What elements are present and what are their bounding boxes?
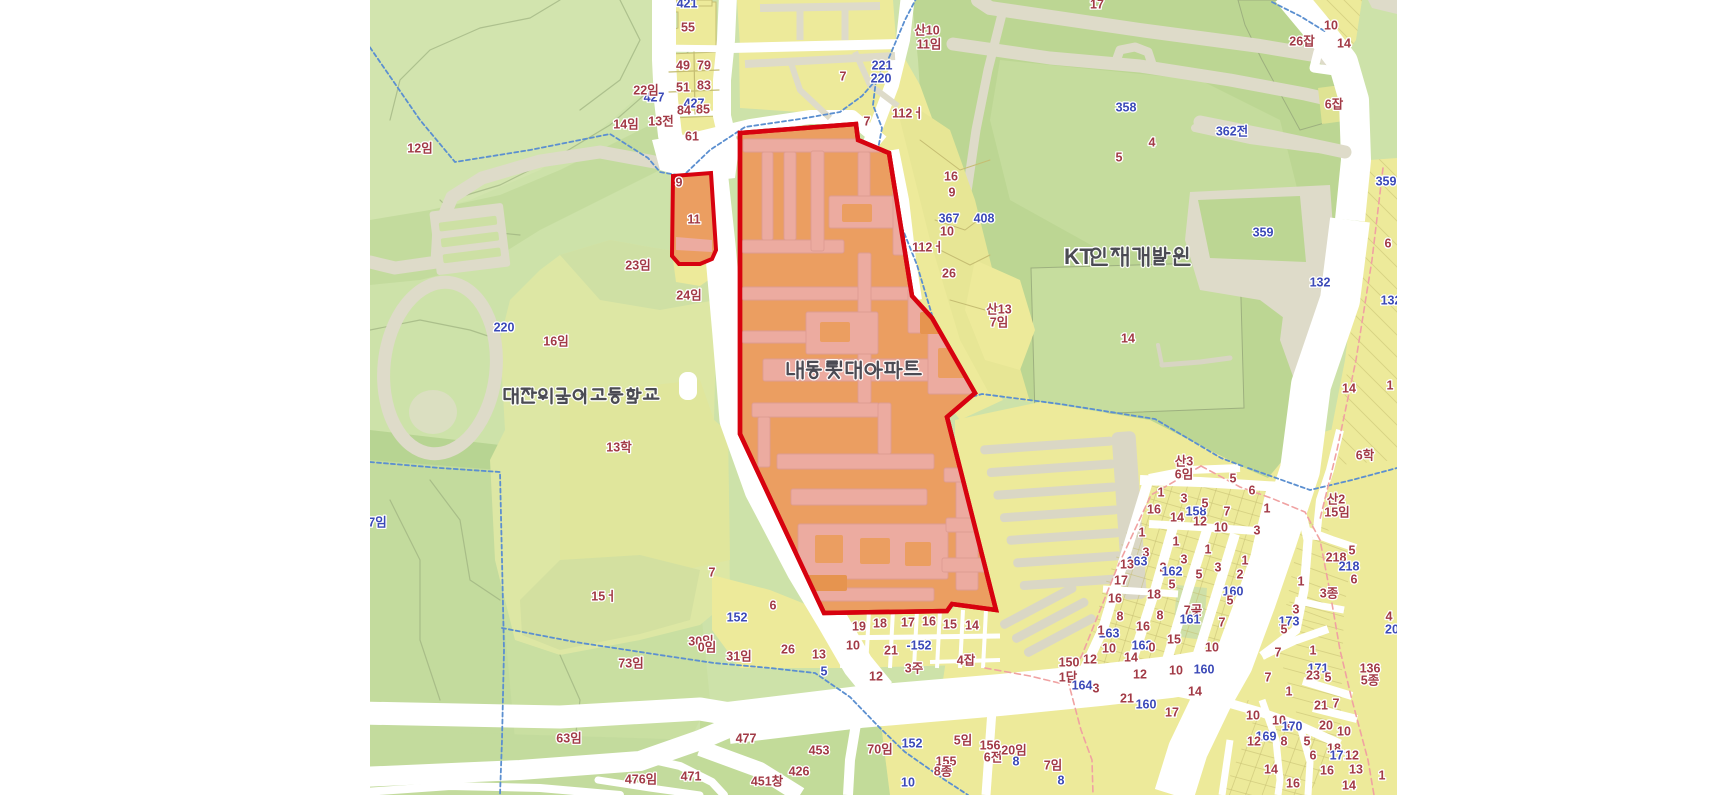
svg-text:476임: 476임	[625, 773, 657, 787]
svg-text:73임: 73임	[618, 657, 643, 671]
svg-text:1: 1	[1205, 543, 1212, 557]
svg-text:14: 14	[1342, 382, 1356, 396]
svg-text:14: 14	[1124, 651, 1138, 665]
svg-text:7: 7	[864, 115, 871, 129]
svg-text:83: 83	[697, 79, 711, 93]
svg-text:3종: 3종	[1320, 587, 1339, 601]
svg-text:152: 152	[902, 737, 923, 751]
svg-text:84: 84	[677, 104, 691, 118]
svg-text:8: 8	[1157, 609, 1164, 623]
svg-text:17: 17	[1165, 706, 1179, 720]
svg-text:85: 85	[696, 103, 710, 117]
svg-text:1: 1	[1286, 685, 1293, 699]
svg-text:221: 221	[872, 59, 893, 73]
svg-text:0임: 0임	[698, 641, 716, 655]
svg-text:5: 5	[1169, 578, 1176, 592]
svg-text:18: 18	[873, 617, 887, 631]
svg-text:7: 7	[1219, 616, 1226, 630]
svg-text:453: 453	[809, 744, 830, 758]
svg-text:161: 161	[1180, 613, 1201, 627]
svg-text:19: 19	[852, 620, 866, 634]
svg-text:7: 7	[1333, 697, 1340, 711]
svg-text:16: 16	[1147, 503, 1161, 517]
svg-text:11임: 11임	[917, 38, 942, 52]
svg-text:55: 55	[681, 21, 695, 35]
svg-text:7임: 7임	[1044, 759, 1062, 773]
svg-text:150: 150	[1059, 656, 1080, 670]
svg-text:21: 21	[1120, 692, 1134, 706]
svg-text:6잡: 6잡	[1325, 97, 1344, 112]
svg-text:5: 5	[1230, 472, 1237, 486]
svg-text:14임: 14임	[613, 118, 638, 132]
svg-text:4: 4	[1149, 136, 1156, 150]
svg-text:14: 14	[1170, 511, 1184, 525]
svg-text:15: 15	[1167, 633, 1181, 647]
svg-text:5: 5	[1227, 594, 1234, 608]
svg-text:14: 14	[1337, 37, 1351, 51]
svg-text:12: 12	[1345, 749, 1359, 763]
svg-text:7: 7	[840, 70, 847, 84]
svg-text:426: 426	[789, 765, 810, 779]
svg-text:10: 10	[940, 225, 954, 239]
svg-text:8: 8	[1117, 610, 1124, 624]
svg-text:10: 10	[1337, 725, 1351, 739]
svg-text:1: 1	[1264, 502, 1271, 516]
svg-text:7: 7	[1224, 505, 1231, 519]
svg-text:5: 5	[1281, 623, 1288, 637]
svg-text:112ㅓ: 112ㅓ	[892, 107, 924, 121]
svg-text:160: 160	[1136, 698, 1157, 712]
svg-text:1: 1	[1379, 769, 1386, 783]
svg-text:6: 6	[770, 599, 777, 613]
svg-text:0: 0	[1149, 641, 1156, 655]
svg-text:31임: 31임	[726, 650, 751, 664]
svg-text:12: 12	[869, 670, 883, 684]
svg-text:14: 14	[1342, 779, 1356, 793]
svg-text:6전: 6전	[984, 750, 1002, 765]
svg-text:산2: 산2	[1327, 492, 1346, 507]
svg-text:20: 20	[1385, 623, 1399, 637]
svg-text:K: K	[1064, 244, 1080, 269]
svg-text:4잡: 4잡	[957, 653, 976, 668]
svg-text:5: 5	[1304, 735, 1311, 749]
svg-text:10: 10	[846, 639, 860, 653]
svg-text:5임: 5임	[954, 734, 972, 748]
svg-text:164: 164	[1072, 679, 1093, 693]
svg-text:5: 5	[1116, 151, 1123, 165]
svg-text:10: 10	[901, 776, 915, 790]
svg-text:63임: 63임	[556, 732, 581, 746]
svg-text:23: 23	[1306, 669, 1320, 683]
svg-text:8종: 8종	[934, 765, 953, 779]
svg-text:16: 16	[944, 170, 958, 184]
svg-text:358: 358	[1116, 101, 1137, 115]
svg-text:471: 471	[681, 770, 702, 784]
svg-text:15임: 15임	[1324, 506, 1349, 520]
svg-text:1: 1	[1098, 624, 1105, 638]
svg-text:산10: 산10	[914, 23, 939, 38]
svg-text:18: 18	[1147, 588, 1161, 602]
svg-text:16: 16	[922, 615, 936, 629]
svg-text:367: 367	[939, 212, 960, 226]
svg-text:11: 11	[687, 213, 700, 227]
svg-text:421: 421	[677, 0, 698, 11]
svg-text:79: 79	[697, 59, 711, 73]
svg-text:1: 1	[1310, 644, 1317, 658]
svg-text:15ㅓ: 15ㅓ	[591, 590, 616, 604]
svg-text:4: 4	[1386, 610, 1393, 624]
svg-text:10: 10	[1324, 19, 1338, 33]
svg-text:13: 13	[812, 648, 826, 662]
svg-text:7: 7	[1275, 646, 1282, 660]
svg-text:6: 6	[1385, 237, 1392, 251]
svg-text:20: 20	[1319, 719, 1333, 733]
svg-text:9: 9	[949, 186, 956, 200]
svg-text:16: 16	[1108, 592, 1122, 606]
svg-text:산3: 산3	[1175, 454, 1194, 469]
svg-text:170: 170	[1282, 720, 1303, 734]
svg-text:15: 15	[943, 618, 957, 632]
svg-text:21: 21	[1314, 699, 1328, 713]
svg-text:1: 1	[1298, 575, 1305, 589]
svg-text:1: 1	[1139, 526, 1146, 540]
svg-text:362전: 362전	[1216, 124, 1248, 139]
svg-text:26: 26	[942, 267, 956, 281]
svg-text:7: 7	[1265, 671, 1272, 685]
svg-text:12임: 12임	[407, 142, 432, 156]
svg-text:22임: 22임	[633, 84, 658, 98]
svg-text:61: 61	[685, 130, 699, 144]
svg-text:49: 49	[676, 59, 690, 73]
svg-text:12: 12	[1193, 515, 1207, 529]
svg-text:10: 10	[1205, 641, 1219, 655]
svg-text:10: 10	[1102, 642, 1116, 656]
svg-text:17: 17	[1114, 574, 1128, 588]
svg-text:152: 152	[727, 611, 748, 625]
svg-text:26잡: 26잡	[1289, 34, 1315, 49]
svg-text:24임: 24임	[676, 289, 701, 303]
svg-text:14: 14	[965, 619, 979, 633]
svg-text:14: 14	[1264, 763, 1278, 777]
svg-text:7: 7	[709, 566, 716, 580]
svg-text:9: 9	[676, 176, 683, 190]
svg-text:13학: 13학	[606, 440, 632, 455]
svg-text:112ㅓ: 112ㅓ	[912, 241, 944, 255]
svg-text:23임: 23임	[625, 259, 650, 273]
svg-text:14: 14	[1188, 685, 1202, 699]
svg-text:12: 12	[1133, 668, 1147, 682]
svg-text:359: 359	[1376, 175, 1397, 189]
svg-text:218: 218	[1339, 560, 1360, 574]
svg-text:3: 3	[1181, 492, 1188, 506]
svg-text:14: 14	[1121, 332, 1135, 346]
svg-text:6: 6	[1351, 573, 1358, 587]
svg-text:6학: 6학	[1356, 448, 1375, 463]
svg-text:1: 1	[1173, 535, 1180, 549]
svg-text:70임: 70임	[867, 743, 892, 757]
svg-text:5종: 5종	[1361, 674, 1380, 688]
svg-text:16: 16	[1286, 777, 1300, 791]
svg-text:132: 132	[1310, 276, 1331, 290]
svg-text:8: 8	[1058, 774, 1065, 788]
svg-text:5: 5	[821, 665, 828, 679]
svg-text:162: 162	[1162, 565, 1183, 579]
svg-text:1: 1	[1158, 486, 1165, 500]
svg-text:3주: 3주	[905, 662, 924, 676]
svg-text:16임: 16임	[543, 335, 568, 349]
svg-text:-152: -152	[906, 639, 931, 653]
svg-text:10: 10	[1246, 709, 1260, 723]
svg-text:408: 408	[974, 212, 995, 226]
svg-text:10: 10	[1169, 664, 1183, 678]
svg-text:5: 5	[1325, 671, 1332, 685]
svg-text:13: 13	[1349, 763, 1363, 777]
svg-text:6: 6	[1249, 484, 1256, 498]
svg-text:1: 1	[1242, 554, 1249, 568]
svg-text:16: 16	[1320, 764, 1334, 778]
svg-text:220: 220	[871, 72, 892, 86]
svg-text:51: 51	[676, 81, 690, 95]
svg-text:17: 17	[1090, 0, 1104, 12]
svg-text:6임: 6임	[1175, 468, 1193, 482]
svg-text:8: 8	[1281, 735, 1288, 749]
svg-text:5: 5	[1349, 544, 1356, 558]
svg-text:5: 5	[1196, 568, 1203, 582]
svg-text:26: 26	[781, 643, 795, 657]
svg-text:160: 160	[1194, 663, 1215, 677]
svg-text:8: 8	[1013, 755, 1020, 769]
svg-text:5: 5	[1202, 497, 1209, 511]
svg-text:16: 16	[1136, 620, 1150, 634]
svg-text:10: 10	[1214, 521, 1228, 535]
svg-text:220: 220	[494, 321, 515, 335]
svg-text:13: 13	[1120, 558, 1134, 572]
svg-text:477: 477	[736, 732, 757, 746]
svg-text:451창: 451창	[751, 774, 784, 789]
svg-text:359: 359	[1253, 226, 1274, 240]
svg-text:7임: 7임	[990, 316, 1008, 330]
svg-text:6: 6	[1310, 749, 1317, 763]
svg-text:3: 3	[1215, 561, 1222, 575]
svg-text:3: 3	[1093, 682, 1100, 696]
svg-text:1: 1	[1387, 379, 1394, 393]
svg-text:12: 12	[1083, 653, 1097, 667]
svg-text:12: 12	[1247, 735, 1261, 749]
svg-text:17: 17	[901, 616, 915, 630]
svg-text:3: 3	[1254, 524, 1261, 538]
svg-text:21: 21	[884, 644, 898, 658]
svg-text:13전: 13전	[648, 114, 673, 129]
svg-text:2: 2	[1237, 568, 1244, 582]
svg-text:산13: 산13	[986, 302, 1011, 317]
